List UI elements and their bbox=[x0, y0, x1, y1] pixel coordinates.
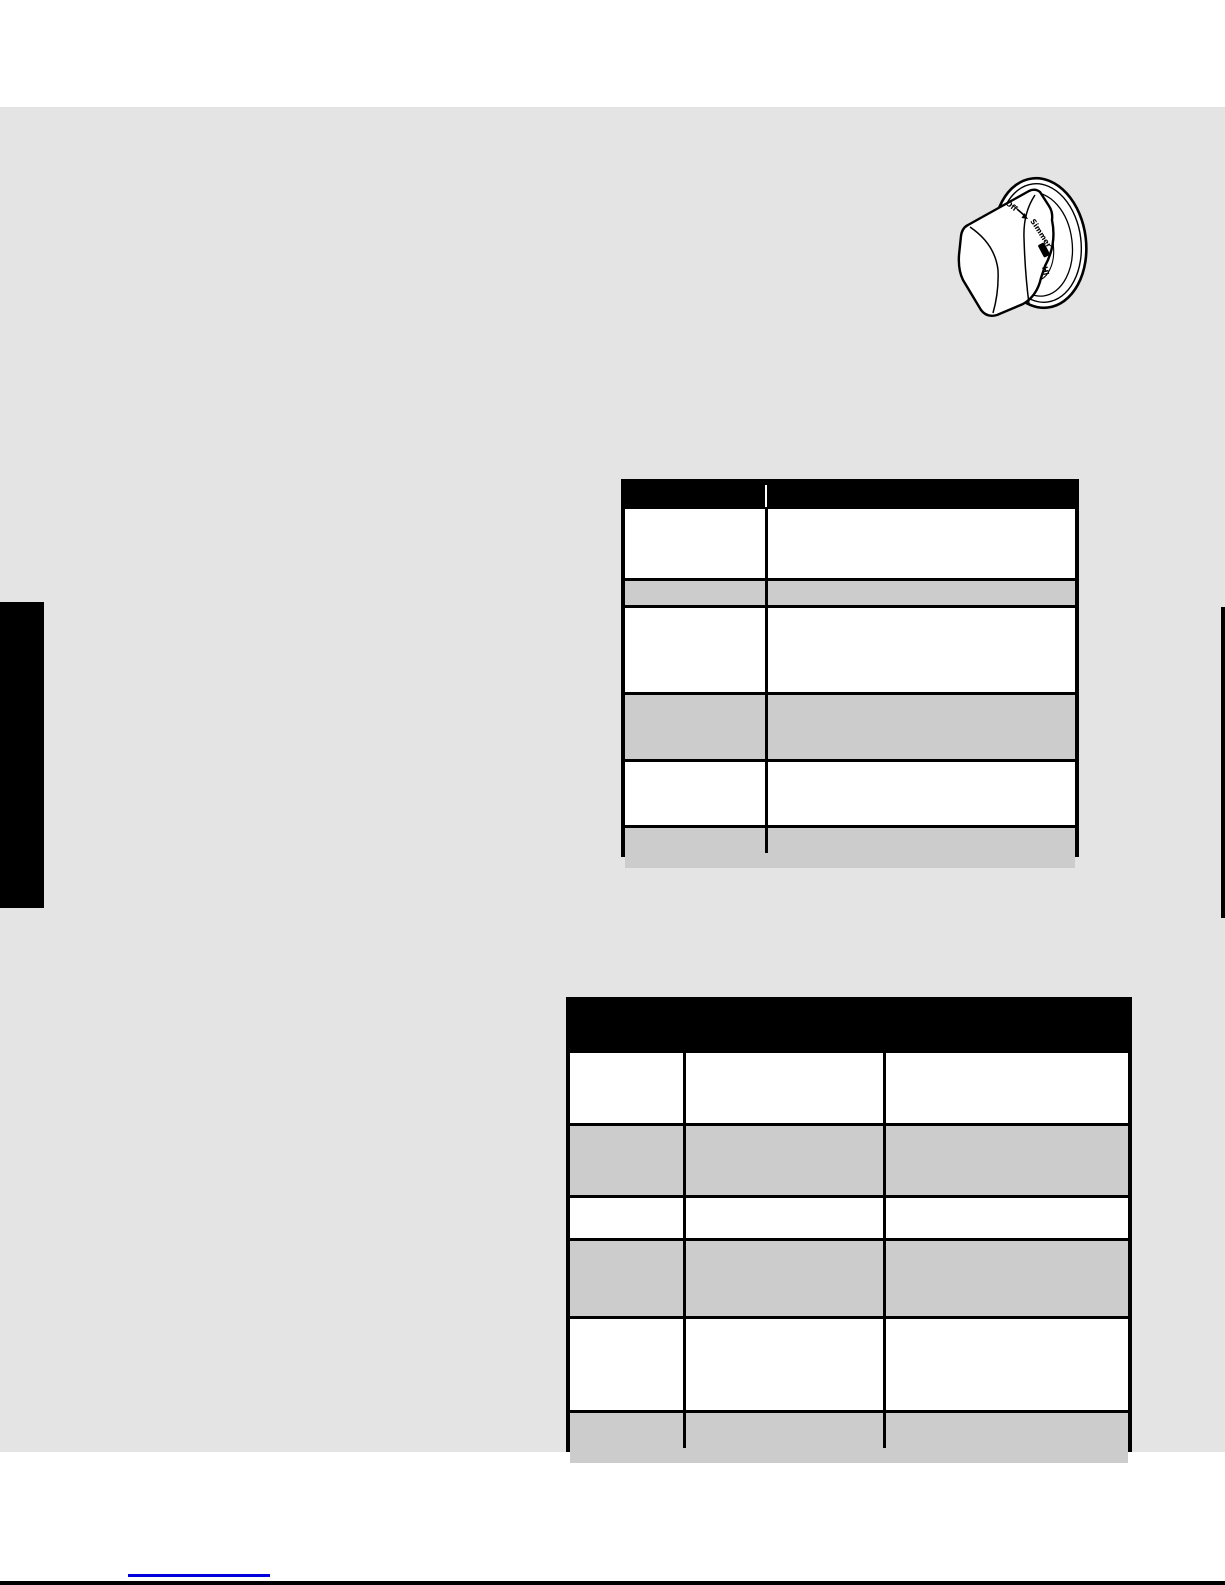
upper-table bbox=[621, 479, 1079, 857]
manual-page: Off Simmer Hi bbox=[0, 0, 1225, 1585]
table-row bbox=[625, 605, 1075, 692]
knob-hi-label: Hi bbox=[1040, 266, 1051, 277]
lower-table bbox=[566, 997, 1132, 1452]
upper-table-header-row bbox=[625, 483, 1075, 509]
lower-table-header-row bbox=[570, 1001, 1128, 1053]
table-row bbox=[625, 509, 1075, 578]
column-divider bbox=[765, 509, 768, 853]
table-row bbox=[570, 1123, 1128, 1195]
burner-knob-illustration: Off Simmer Hi bbox=[945, 158, 1095, 320]
header-column-divider bbox=[765, 485, 767, 507]
bottom-page-rule bbox=[0, 1581, 1225, 1585]
page-edge-rule bbox=[1221, 607, 1225, 918]
table-row bbox=[570, 1238, 1128, 1316]
table-row bbox=[625, 578, 1075, 605]
column-divider bbox=[683, 1053, 686, 1448]
column-divider bbox=[883, 1053, 886, 1448]
table-row bbox=[625, 759, 1075, 825]
table-row bbox=[570, 1316, 1128, 1410]
section-tab bbox=[0, 602, 44, 908]
table-row bbox=[570, 1195, 1128, 1238]
footer-link[interactable] bbox=[128, 1574, 270, 1577]
table-row bbox=[570, 1410, 1128, 1463]
table-row bbox=[625, 692, 1075, 759]
table-row bbox=[625, 825, 1075, 868]
table-row bbox=[570, 1053, 1128, 1123]
